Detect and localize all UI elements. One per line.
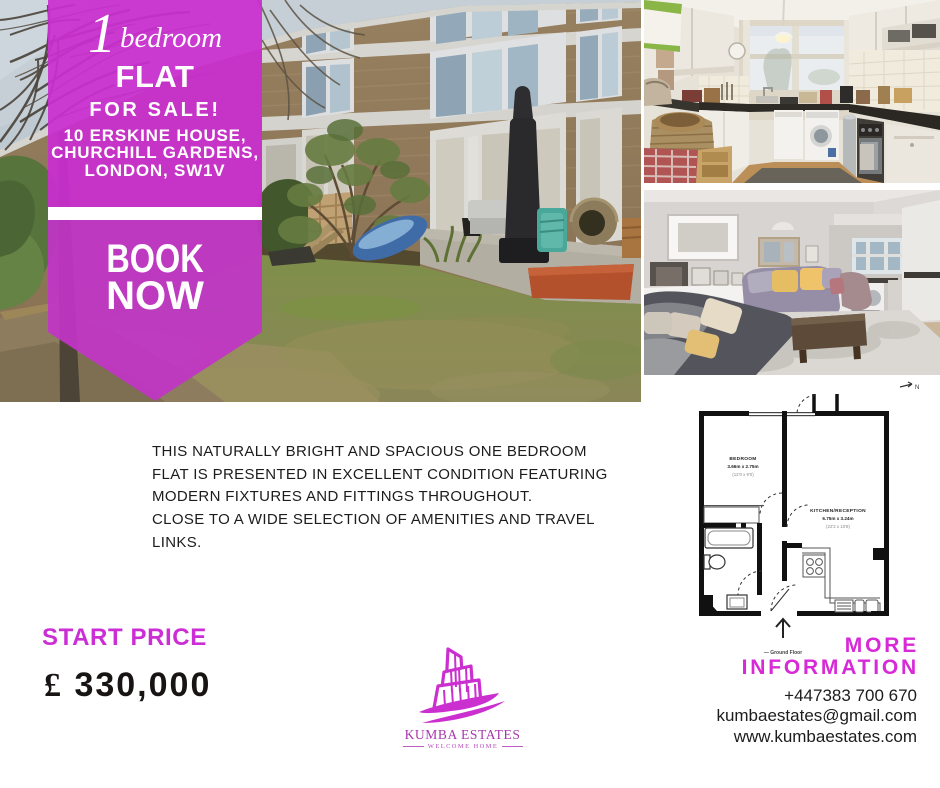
svg-text:N: N (915, 385, 919, 391)
svg-text:3.66m x 2.75m: 3.66m x 2.75m (727, 464, 758, 469)
svg-text:6.75m x 3.24m: 6.75m x 3.24m (822, 516, 853, 521)
svg-text:(12'0 x 9'0): (12'0 x 9'0) (732, 472, 754, 477)
svg-text:BEDROOM: BEDROOM (729, 456, 756, 462)
svg-text:(22'2 x 10'8): (22'2 x 10'8) (826, 524, 850, 529)
svg-text:KITCHEN/RECEPTION: KITCHEN/RECEPTION (810, 508, 866, 514)
